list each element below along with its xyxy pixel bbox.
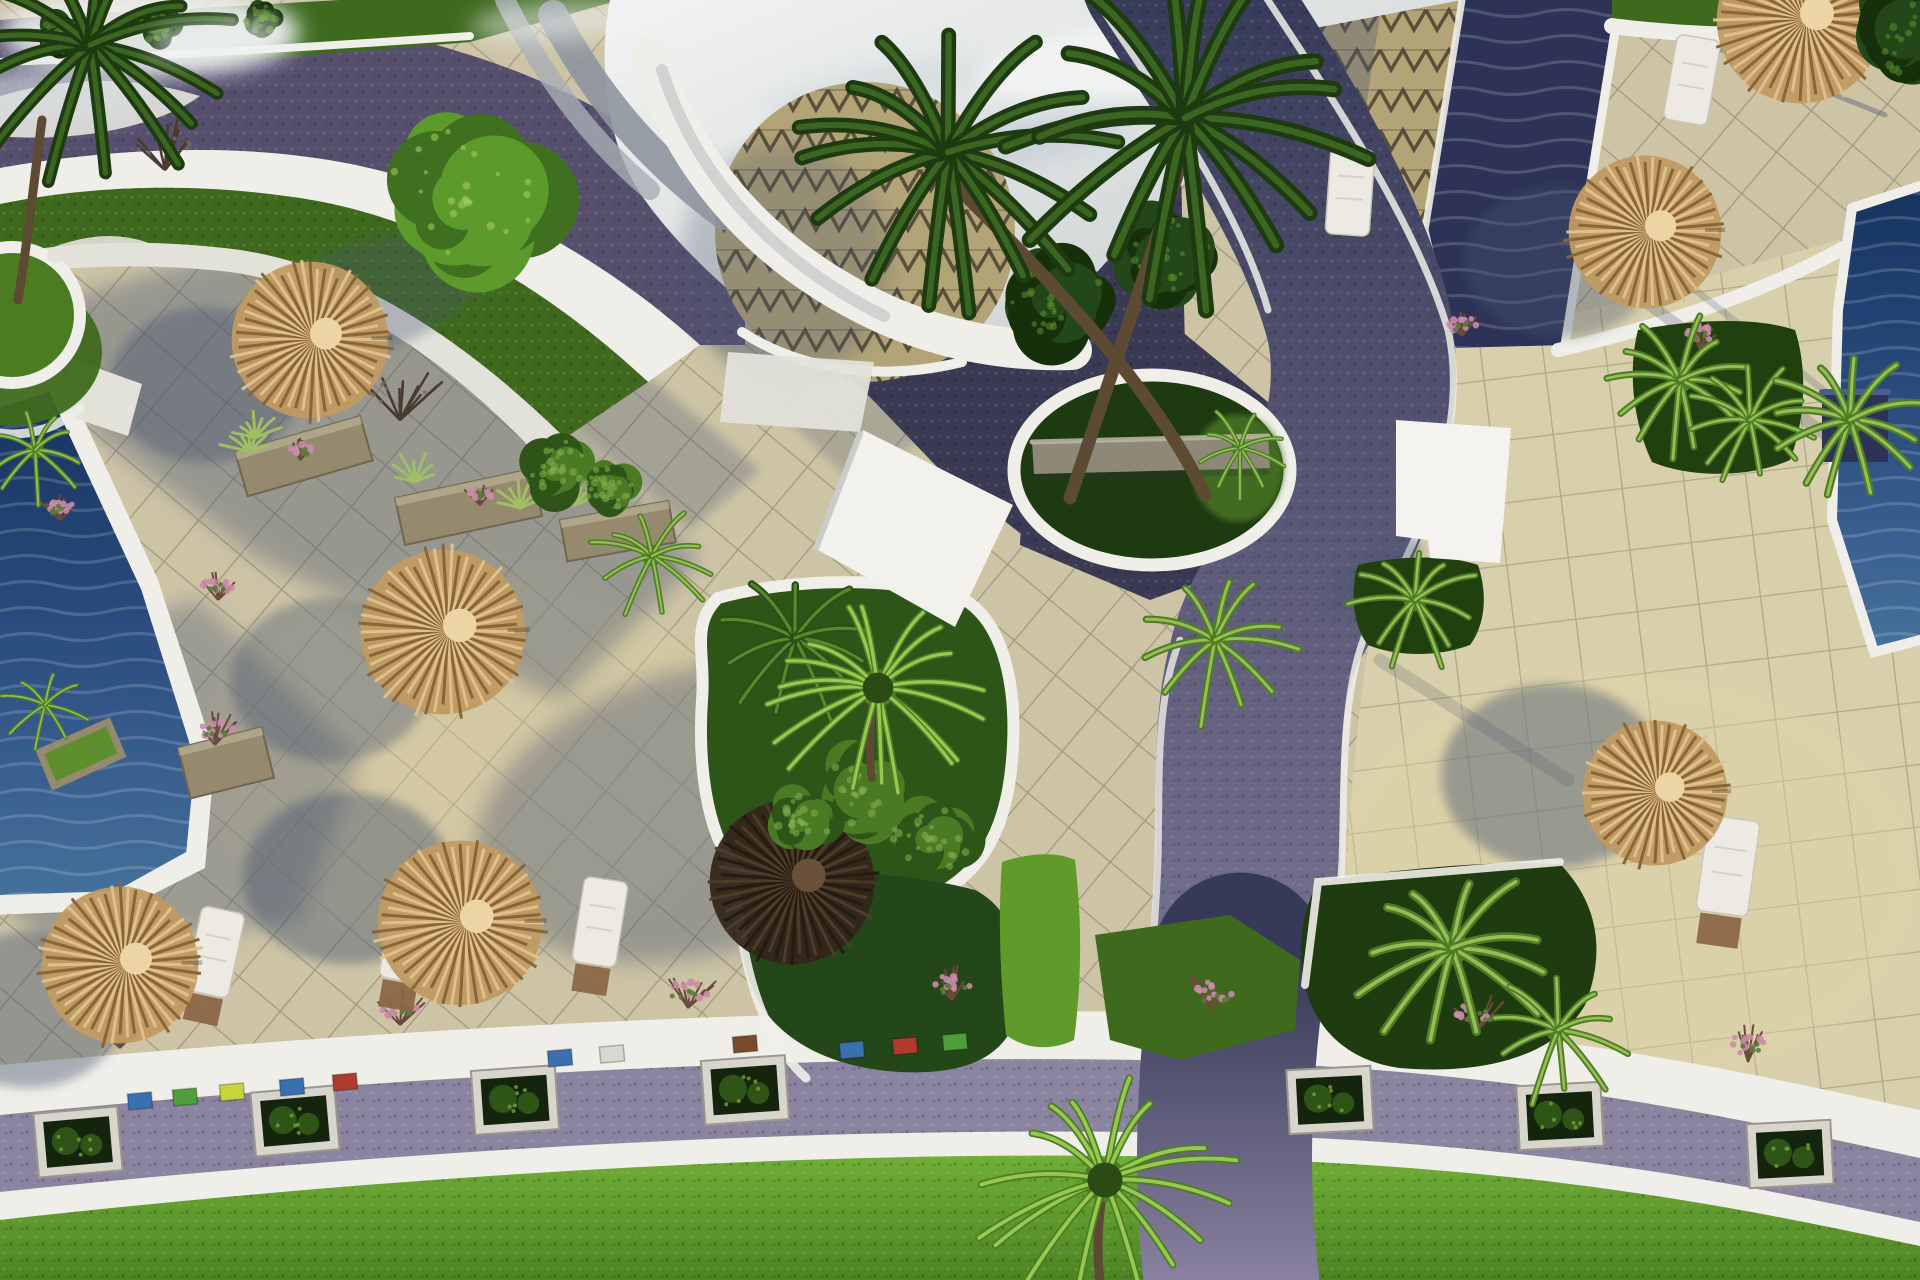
bridge-slab [720, 352, 874, 432]
planter-box [1286, 1066, 1373, 1134]
planter-box [33, 1106, 122, 1177]
scene-layers [0, 0, 1920, 1280]
planter-box [471, 1065, 559, 1135]
planter-box [250, 1085, 339, 1156]
planter-box [1746, 1120, 1833, 1188]
colored-crate [732, 1035, 757, 1053]
colored-crate [172, 1088, 197, 1106]
colored-crate [279, 1078, 304, 1096]
planter-box [701, 1055, 789, 1125]
colored-crate [892, 1037, 917, 1055]
colored-crate [219, 1083, 244, 1101]
colored-crate [547, 1049, 572, 1067]
colored-crate [839, 1041, 864, 1059]
planter-box [1516, 1082, 1603, 1150]
lawn-wedge [1000, 854, 1080, 1047]
colored-crate [127, 1092, 152, 1110]
resort-aerial-render [0, 0, 1920, 1280]
colored-crate [942, 1033, 967, 1051]
colored-crate [599, 1045, 624, 1063]
aerial-render-canvas [0, 0, 1920, 1280]
colored-crate [332, 1073, 357, 1091]
